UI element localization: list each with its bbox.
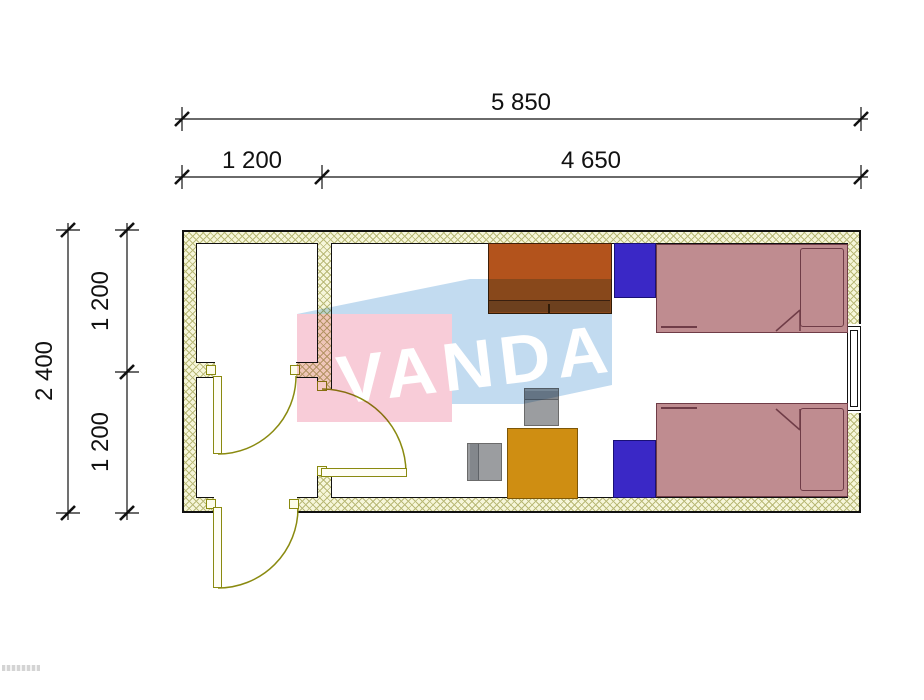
vanda-watermark-logo: VANDA: [0, 0, 924, 700]
floor-plan-canvas: 5 850 1 200 4 650 2 400 1 200 1 200: [0, 0, 924, 700]
fine-print-text: [2, 665, 40, 671]
